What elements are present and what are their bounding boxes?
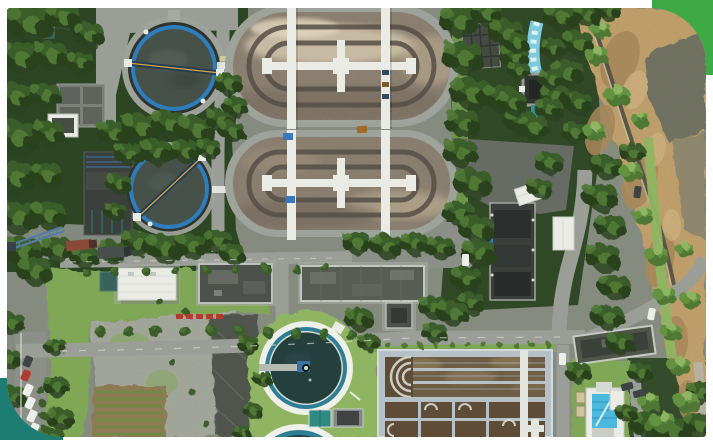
gray-shed	[333, 409, 363, 427]
garden-plots	[92, 386, 166, 437]
aerial-photo	[7, 8, 706, 437]
blue-inflow-channel	[533, 22, 537, 74]
car-basin-road	[559, 353, 566, 365]
page	[0, 0, 713, 444]
oxidation-ditch-2	[220, 126, 458, 240]
small-building	[386, 303, 412, 328]
white-canopy-2	[553, 217, 574, 250]
teal-shed	[309, 410, 331, 427]
car-parking	[462, 254, 469, 266]
aeration-basin-complex	[378, 350, 552, 437]
oxidation-ditch-1	[220, 8, 460, 129]
dark-roof-building-2	[301, 266, 424, 301]
